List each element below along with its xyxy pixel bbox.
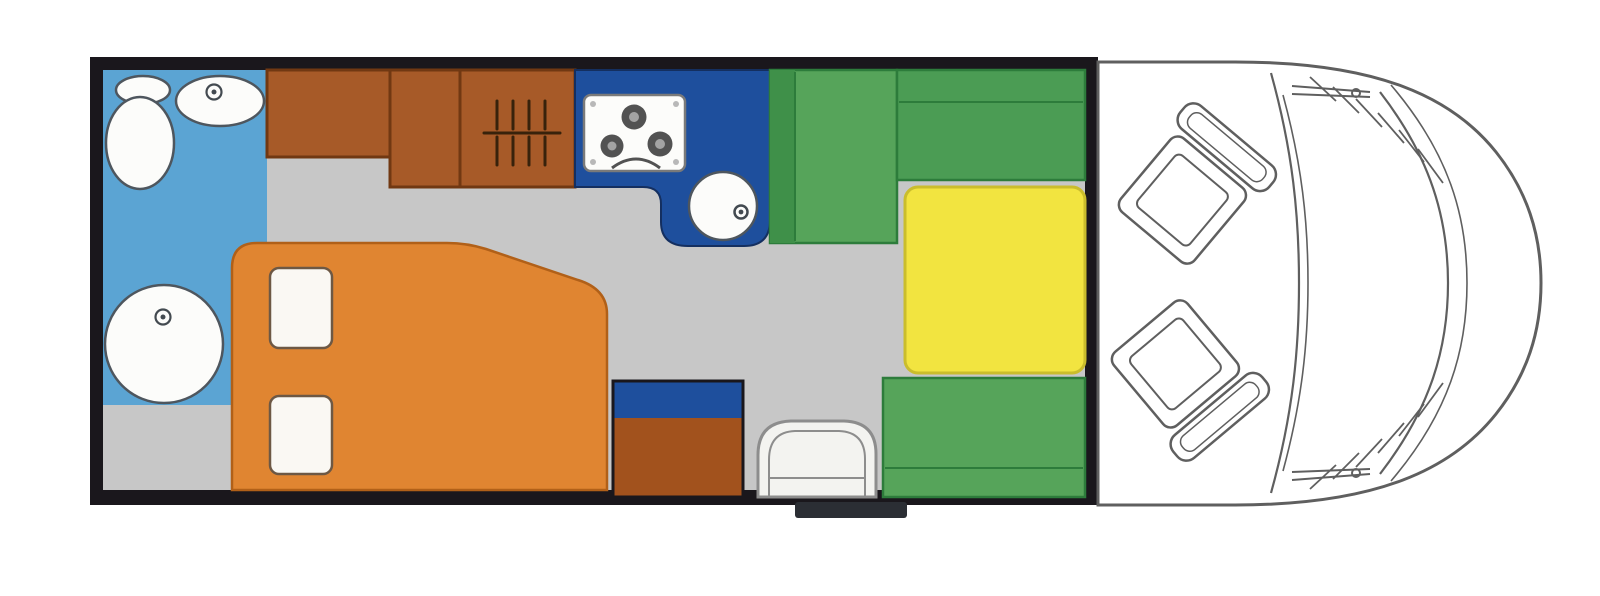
pillow-2: [270, 396, 332, 474]
stove-screw: [590, 159, 596, 165]
stove-burner-3-center: [655, 139, 665, 149]
cabinet-2: [390, 70, 460, 187]
dinette-table: [905, 187, 1085, 373]
pillow-1: [270, 268, 332, 348]
stove-screw: [590, 101, 596, 107]
side-cabinet-top: [613, 381, 743, 418]
shower-tray: [105, 285, 223, 403]
washbasin-drain-dot: [212, 90, 217, 95]
cabinet-1: [267, 70, 390, 157]
floorplan-svg: [0, 0, 1600, 596]
washbasin: [176, 76, 264, 126]
bench-bottom: [883, 378, 1085, 497]
shower-drain-dot: [161, 315, 166, 320]
entry-step: [795, 502, 907, 518]
bench-left-backrest: [770, 70, 795, 243]
motorhome-floorplan: [0, 0, 1600, 596]
kitchen-sink-drain-dot: [739, 210, 744, 215]
stove-screw: [673, 159, 679, 165]
stove-burner-2-center: [608, 142, 617, 151]
toilet-bowl: [106, 97, 174, 189]
cabinet-3: [460, 70, 575, 187]
entry-seat: [758, 421, 876, 497]
stove-screw: [673, 101, 679, 107]
stove-burner-1-center: [629, 112, 639, 122]
side-cabinet-body: [613, 418, 743, 497]
cab-body: [1098, 62, 1541, 505]
kitchen-sink: [689, 172, 757, 240]
bench-top: [897, 70, 1085, 180]
